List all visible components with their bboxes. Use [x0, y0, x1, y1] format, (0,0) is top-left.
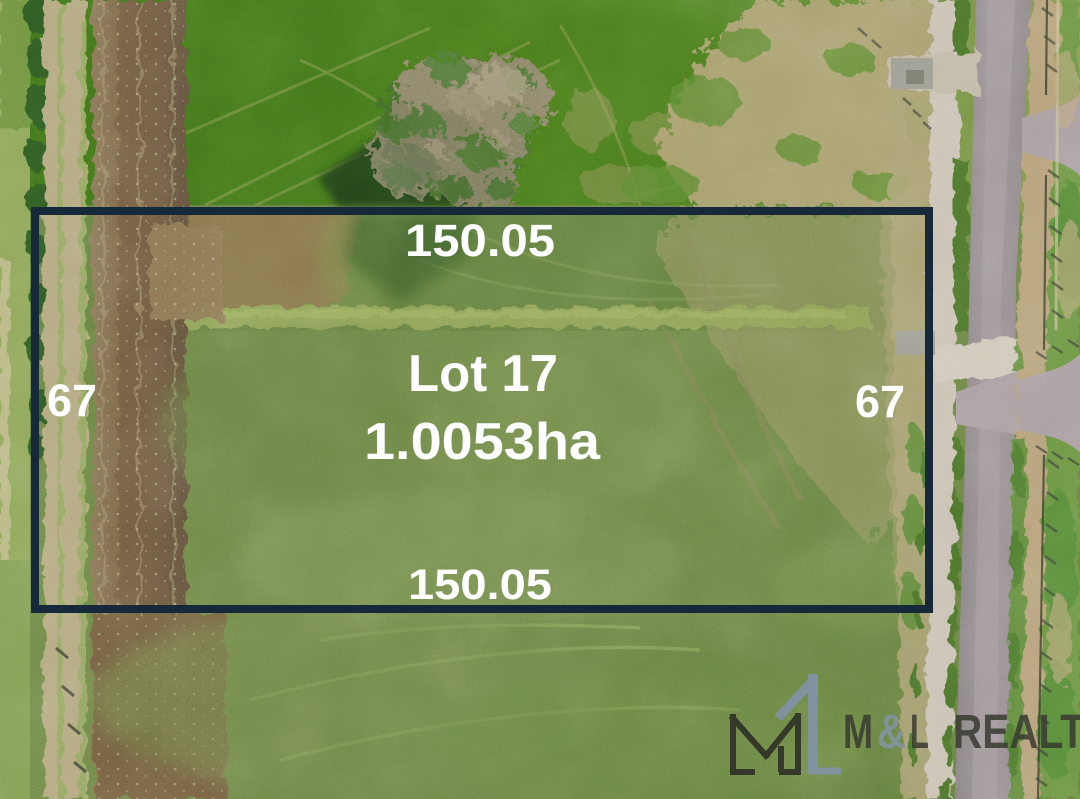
svg-text:Lot 17: Lot 17	[408, 345, 558, 403]
svg-text:67: 67	[855, 376, 905, 427]
svg-text:L: L	[910, 706, 929, 759]
svg-text:150.05: 150.05	[408, 561, 552, 609]
svg-text:M: M	[843, 706, 873, 759]
svg-text:1.0053ha: 1.0053ha	[364, 413, 601, 471]
svg-text:&: &	[877, 706, 906, 759]
svg-text:150.05: 150.05	[405, 215, 555, 266]
svg-text:REALT: REALT	[953, 706, 1080, 759]
svg-text:67: 67	[47, 375, 97, 426]
